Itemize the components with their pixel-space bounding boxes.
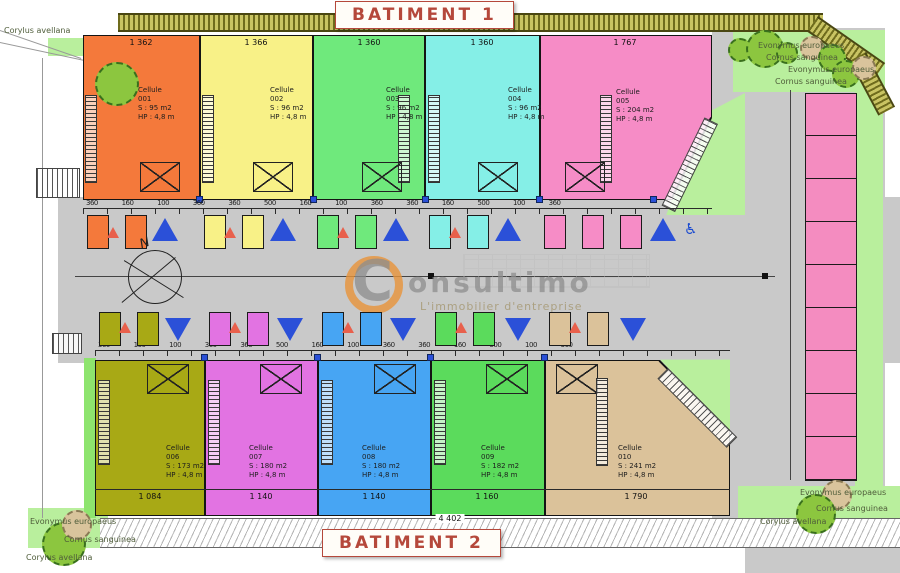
parking-stall xyxy=(620,215,642,249)
flow-arrow-small xyxy=(342,322,354,333)
survey-marker xyxy=(762,273,768,279)
flow-arrow-small xyxy=(107,227,119,238)
parking-stall xyxy=(317,215,339,249)
dimension-line-building2 xyxy=(95,489,730,490)
stair-cell-007 xyxy=(208,380,220,465)
site-plan: Cellule 001 S : 95 m2 HP : 4,8 m Cellule… xyxy=(0,0,900,573)
stair-cell-009 xyxy=(434,380,446,465)
parking-stall xyxy=(87,215,109,249)
plant-label-evonymus-bl: Evonymus europaeus xyxy=(30,517,116,526)
canopy-cell-004 xyxy=(478,162,518,192)
dim-cell-010: 1 790 xyxy=(625,492,648,501)
parking-stall xyxy=(549,312,571,346)
entrance-arrow xyxy=(620,318,646,341)
building2-title: BATIMENT 2 xyxy=(322,529,501,557)
plant-label-cornus-br: Cornus sanguinea xyxy=(816,504,888,513)
dim-cell-004: 1 360 xyxy=(471,38,494,47)
canopy-cell-009 xyxy=(486,364,528,394)
flow-arrow-small xyxy=(449,227,461,238)
lane-divider-right xyxy=(790,90,791,480)
cell-004-label: Cellule 004 S : 96 m2 HP : 4,8 m xyxy=(508,86,544,122)
dim-total: 4 402 xyxy=(436,514,465,523)
flow-arrow-small xyxy=(337,227,349,238)
dock-door xyxy=(541,354,548,361)
dim-cell-009: 1 160 xyxy=(476,492,499,501)
technical-enclosure-top xyxy=(36,168,80,198)
plant-label-cornus-tr2: Cornus sanguinea xyxy=(775,77,847,86)
parking-stall xyxy=(467,215,489,249)
stair-cell-002 xyxy=(202,95,214,183)
canopy-cell-003 xyxy=(362,162,402,192)
plant-label-corylus-br: Corylus avellana xyxy=(760,517,826,526)
stair-cell-004 xyxy=(428,95,440,183)
plant-label-corylus-tl: Corylus avellana xyxy=(4,26,70,35)
parking-stall xyxy=(99,312,121,346)
dim-cell-001: 1 362 xyxy=(130,38,153,47)
canopy-cell-002 xyxy=(253,162,293,192)
dock-door xyxy=(314,354,321,361)
accessible-parking-icon: ♿ xyxy=(684,220,697,238)
parking-stall xyxy=(204,215,226,249)
entrance-arrow xyxy=(165,318,191,341)
cell-001-label: Cellule 001 S : 95 m2 HP : 4,8 m xyxy=(138,86,174,122)
cell-009-label: Cellule 009 S : 182 m2 HP : 4,8 m xyxy=(481,444,519,480)
canopy-cell-001 xyxy=(140,162,180,192)
parking-stall xyxy=(247,312,269,346)
canopy-cell-010 xyxy=(556,364,598,394)
flow-arrow-small xyxy=(119,322,131,333)
dock-door xyxy=(427,354,434,361)
canopy-cell-005 xyxy=(565,162,605,192)
entrance-arrow xyxy=(270,218,296,241)
stair-cell-008 xyxy=(321,380,333,465)
parking-stall xyxy=(209,312,231,346)
cell-010-label: Cellule 010 S : 241 m2 HP : 4,8 m xyxy=(618,444,656,480)
cell-008-label: Cellule 008 S : 180 m2 HP : 4,8 m xyxy=(362,444,400,480)
parking-stall xyxy=(242,215,264,249)
parking-stall xyxy=(137,312,159,346)
building1-title: BATIMENT 1 xyxy=(335,1,514,29)
dim-cell-008: 1 140 xyxy=(363,492,386,501)
cell-006-label: Cellule 006 S : 173 m2 HP : 4,8 m xyxy=(166,444,204,480)
entrance-arrow xyxy=(505,318,531,341)
tree-bottom-right xyxy=(796,494,836,534)
cell-007-label: Cellule 007 S : 180 m2 HP : 4,8 m xyxy=(249,444,287,480)
dimension-line-top-stalls xyxy=(83,208,712,214)
dim-cell-006: 1 084 xyxy=(139,492,162,501)
entrance-arrow xyxy=(152,218,178,241)
plant-label-cornus-tr1: Cornus sanguinea xyxy=(766,53,838,62)
stair-cell-001 xyxy=(85,95,97,183)
canopy-cell-008 xyxy=(374,364,416,394)
parking-stall xyxy=(587,312,609,346)
cell-003-label: Cellule 003 S : 96 m2 HP : 4,8 m xyxy=(386,86,422,122)
dock-door xyxy=(201,354,208,361)
right-parking-stalls xyxy=(805,93,857,481)
flow-arrow-small xyxy=(229,322,241,333)
watermark-logo-letter: C xyxy=(352,254,393,310)
stair-cell-010 xyxy=(596,378,608,466)
plant-label-evonymus-tr1: Evonymus europaeus xyxy=(758,41,844,50)
flow-arrow-small xyxy=(455,322,467,333)
dock-door xyxy=(650,196,657,203)
plant-label-corylus-bl: Corylus avellana xyxy=(26,553,92,562)
plant-label-evonymus-tr2: Evonymus europaeus xyxy=(788,65,874,74)
dimension-line-bottom-stalls xyxy=(95,350,730,356)
entrance-arrow xyxy=(383,218,409,241)
plant-label-cornus-bl: Cornus sanguinea xyxy=(64,535,136,544)
plant-label-evonymus-br: Evonymus europaeus xyxy=(800,488,886,497)
entrance-arrow xyxy=(650,218,676,241)
parking-stall xyxy=(429,215,451,249)
dim-cell-005: 1 767 xyxy=(614,38,637,47)
flow-arrow-small xyxy=(569,322,581,333)
entrance-arrow xyxy=(495,218,521,241)
canopy-cell-007 xyxy=(260,364,302,394)
canopy-cell-006 xyxy=(147,364,189,394)
entrance-arrow xyxy=(390,318,416,341)
technical-enclosure-bottom xyxy=(52,333,82,354)
parking-stall xyxy=(360,312,382,346)
tree-corylus-top-left xyxy=(95,62,139,106)
cell-005-label: Cellule 005 S : 204 m2 HP : 4,8 m xyxy=(616,88,654,124)
parking-stall xyxy=(435,312,457,346)
parking-stall xyxy=(544,215,566,249)
dim-cell-007: 1 140 xyxy=(250,492,273,501)
parking-stall xyxy=(322,312,344,346)
micro-dimensions-top: 360 160 100 360 360 500 160 100 360 360 … xyxy=(86,199,560,207)
parking-stall xyxy=(582,215,604,249)
dim-cell-002: 1 366 xyxy=(245,38,268,47)
cell-002-label: Cellule 002 S : 96 m2 HP : 4,8 m xyxy=(270,86,306,122)
parking-stall xyxy=(355,215,377,249)
watermark-brand: onsultimo xyxy=(408,266,592,299)
left-boundary-line xyxy=(42,58,43,518)
flow-arrow-small xyxy=(224,227,236,238)
parking-stall xyxy=(473,312,495,346)
stair-cell-006 xyxy=(98,380,110,465)
entrance-arrow xyxy=(277,318,303,341)
dim-cell-003: 1 360 xyxy=(358,38,381,47)
